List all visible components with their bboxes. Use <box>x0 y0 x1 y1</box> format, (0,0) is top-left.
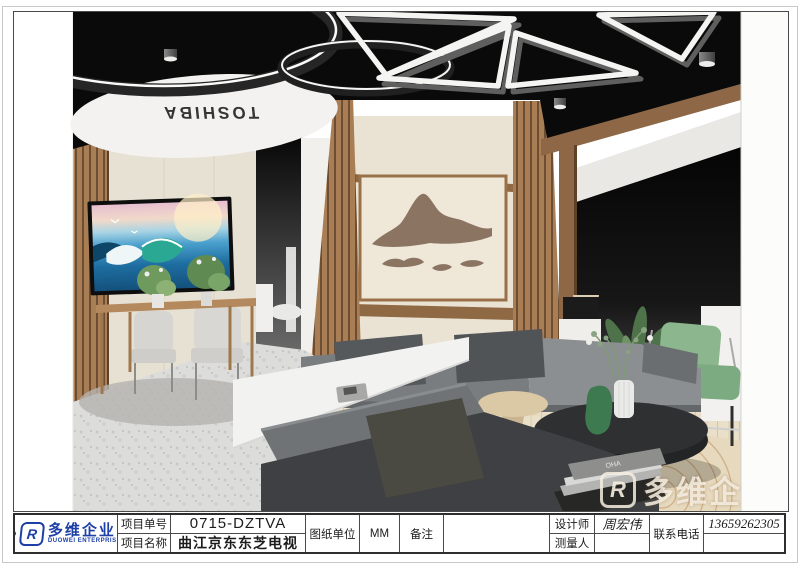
designer-value: 周宏伟 <box>595 515 650 534</box>
phone-value: 13659262305 <box>704 515 784 534</box>
designer-label: 设计师 <box>550 515 595 534</box>
title-block: R 多维企业 DUOWEI ENTERPRISE 项目单号 0715-DZTVA… <box>13 513 786 554</box>
surveyor-value <box>595 534 650 553</box>
drawing-sheet: OHA TOSHIBA R 多维企 R 多维企业 DUOWEI ENTERPRI… <box>0 0 800 566</box>
logo-dot-icon <box>15 531 16 536</box>
showroom-render: OHA <box>14 12 788 511</box>
project-no-value: 0715-DZTVA <box>171 515 306 534</box>
doorway-opening <box>256 138 302 368</box>
toshiba-ceiling-text: TOSHIBA <box>125 102 295 122</box>
remark-value <box>444 515 550 552</box>
watermark: R 多维企 <box>600 467 742 512</box>
project-name-label: 项目名称 <box>118 534 171 553</box>
logo-name-cn: 多维企业 <box>48 523 118 538</box>
duowei-logo-icon: R <box>19 522 46 546</box>
green-vase <box>585 386 612 435</box>
project-no-label: 项目单号 <box>118 515 171 534</box>
phone-empty-cell <box>704 534 784 553</box>
watermark-logo-icon: R <box>600 472 636 508</box>
phone-label: 联系电话 <box>650 515 704 552</box>
white-pedestal <box>256 284 273 332</box>
right-wall-band <box>741 12 788 511</box>
project-name-value: 曲江京东东芝电视 <box>171 534 306 553</box>
render-viewport: OHA TOSHIBA R 多维企 <box>13 11 789 512</box>
display-frame <box>563 297 599 319</box>
company-logo: R 多维企业 DUOWEI ENTERPRISE <box>15 515 118 552</box>
watermark-text: 多维企 <box>643 467 742 512</box>
logo-name-en: DUOWEI ENTERPRISE <box>48 538 118 545</box>
unit-value: MM <box>360 515 400 552</box>
remark-label: 备注 <box>400 515 444 552</box>
unit-label: 图纸单位 <box>306 515 360 552</box>
surveyor-label: 测量人 <box>550 534 595 553</box>
